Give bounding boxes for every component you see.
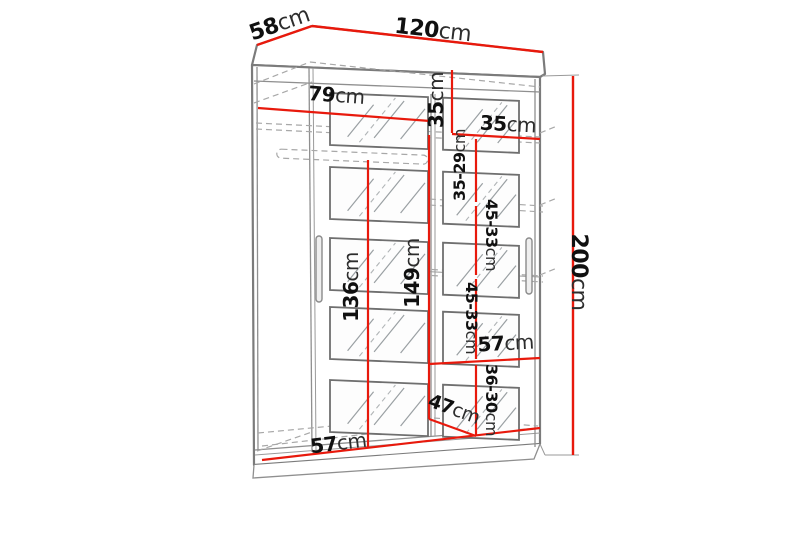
dim-label-bottom-shelf-spacing: 36-30cm (482, 364, 501, 436)
dim-unit: cm (450, 129, 469, 152)
wardrobe-dimension-diagram: 58cm 120cm 200cm 79cm 35cm 35cm 35-29cm … (0, 0, 800, 533)
dim-label-interior-height: 149cm (400, 238, 424, 308)
dim-unit: cm (437, 19, 472, 48)
left-door-handle (316, 236, 322, 302)
dim-unit: cm (334, 83, 365, 109)
dim-unit: cm (339, 252, 363, 281)
diagram-canvas: 58cm 120cm 200cm 79cm 35cm 35cm 35-29cm … (0, 0, 800, 533)
dim-value: 120 (393, 14, 440, 44)
dim-value: 57 (477, 331, 505, 356)
dim-unit: cm (424, 72, 448, 101)
dim-label-shelf-spacing-upper: 45-33cm (482, 199, 501, 271)
dim-value: 35 (479, 111, 507, 136)
dim-value: 45-33 (462, 282, 481, 331)
dim-unit: cm (504, 330, 535, 356)
dim-unit: cm (482, 248, 501, 271)
dim-value: 136 (339, 282, 363, 322)
dim-unit: cm (566, 278, 591, 311)
dim-label-height: 200cm (566, 234, 591, 311)
dim-label-left-compartment-width: 79cm (308, 81, 366, 109)
dim-value: 79 (308, 81, 336, 107)
dim-value: 36-30 (482, 364, 501, 413)
dim-value: 149 (400, 268, 424, 308)
dim-value: 45-33 (482, 199, 501, 248)
dim-value: 35-29 (450, 152, 469, 201)
mirror-panel (330, 167, 428, 223)
dim-unit: cm (482, 413, 501, 436)
dim-label-bottom-right-width: 57cm (477, 330, 535, 357)
dim-unit: cm (335, 428, 367, 455)
dim-label-top-compartment-height: 35cm (424, 72, 448, 128)
right-door-handle (526, 238, 532, 294)
mirror-panel (330, 380, 428, 436)
dim-label-top-right-width: 35cm (479, 111, 537, 138)
dim-value: 57 (309, 431, 339, 458)
dim-value: 35 (424, 101, 448, 128)
dim-label-shelf-spacing-top: 35-29cm (450, 129, 469, 201)
dim-value: 200 (566, 234, 591, 279)
dim-unit: cm (400, 238, 424, 267)
dim-label-hanging-space-height: 136cm (339, 252, 363, 322)
dim-unit: cm (506, 112, 537, 138)
